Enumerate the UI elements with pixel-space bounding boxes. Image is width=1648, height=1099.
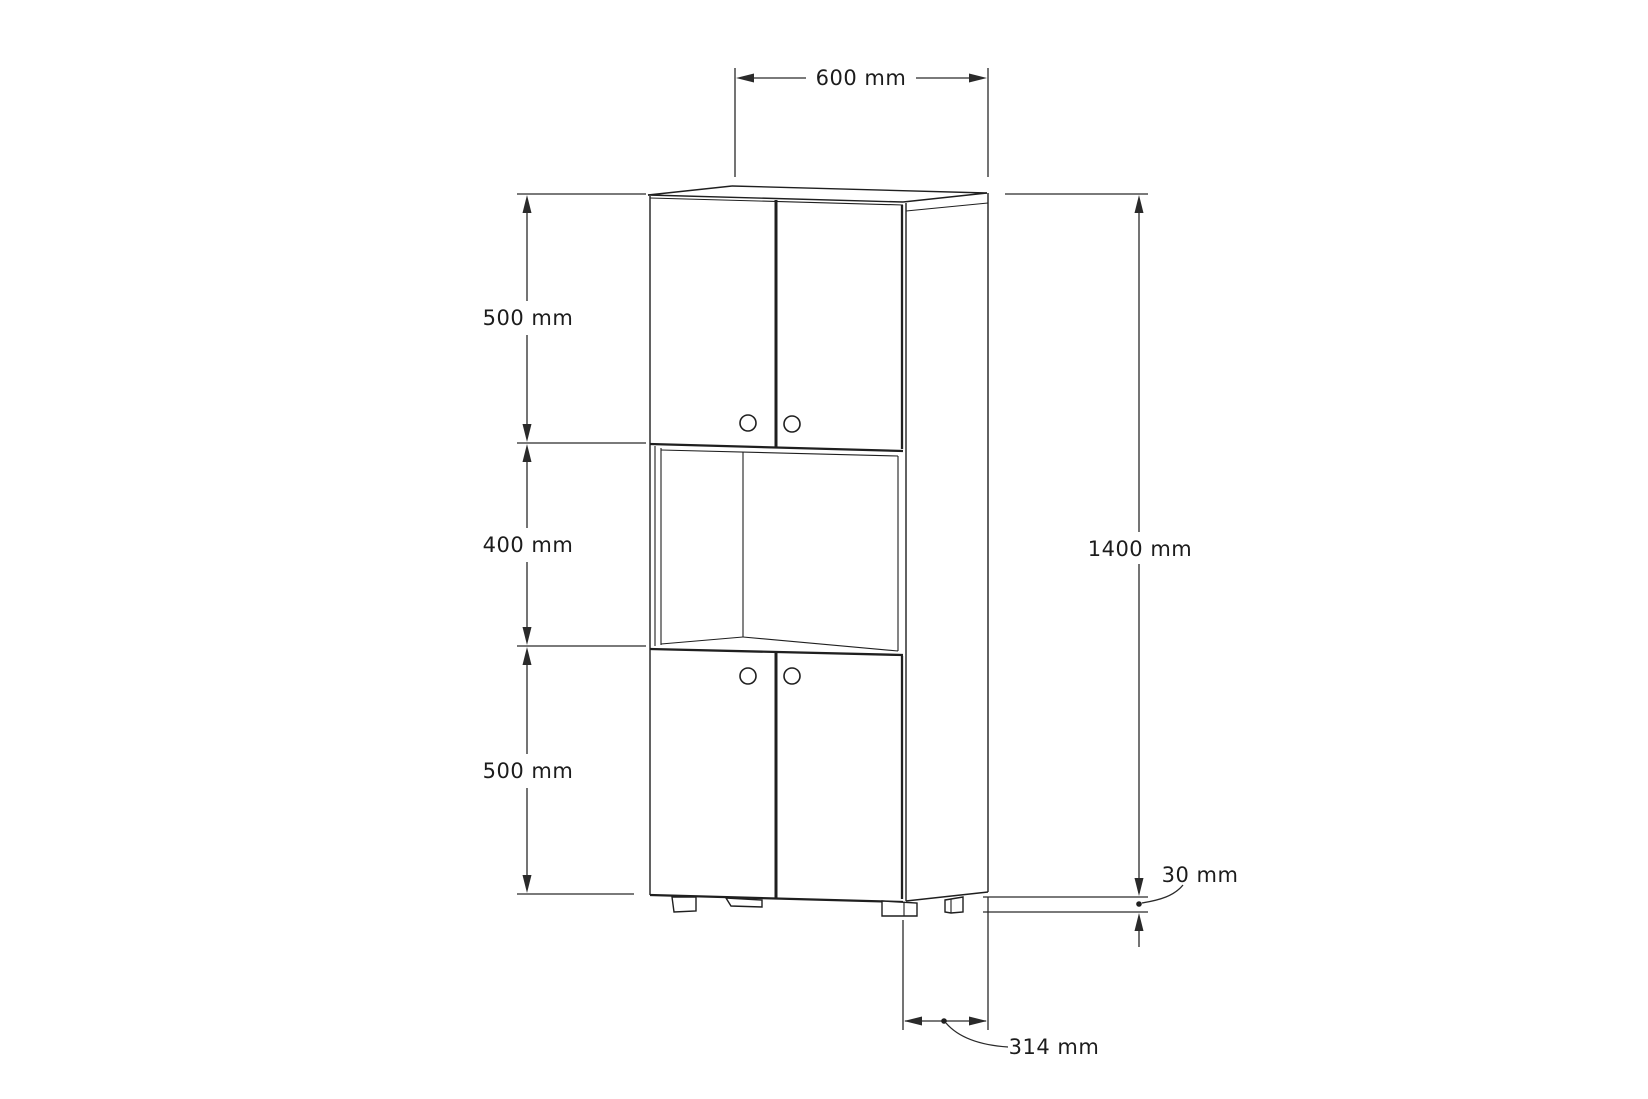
dim-total-height-1400: 1400 mm [1005,194,1192,896]
cabinet-side-panel [906,193,988,901]
cabinet-top-panel [648,186,987,205]
arrowhead-down-icon [523,875,532,893]
arrowhead-right-icon [969,74,987,83]
compartment-shelf-back-left [661,637,743,644]
lower-left-door-knob [740,668,756,684]
foot-front-left [672,897,696,912]
arrowhead-down-icon [523,424,532,442]
dim-depth-label: 314 mm [1009,1035,1100,1059]
top-panel-left-edge [648,186,732,195]
foot-front-right [882,901,917,916]
dim-width-label: 600 mm [816,66,907,90]
dim-depth-leader-line [946,1023,1008,1047]
arrowhead-left-icon [904,1017,922,1026]
arrowhead-right-icon [969,1017,987,1026]
arrowhead-left-icon [736,74,754,83]
foot-back-left [726,898,762,907]
upper-right-door-knob [784,416,800,432]
lower-right-door-knob [784,668,800,684]
open-compartment [650,446,903,655]
dim-upper-500: 500 mm [483,195,574,442]
foot-back-right [945,897,963,913]
dim-leg-leader-line [1142,885,1183,903]
dim-leg-height-label: 30 mm [1162,863,1239,887]
dim-upper-height-label: 500 mm [483,306,574,330]
arrowhead-up-icon [523,444,532,462]
arrowhead-down-icon [523,627,532,645]
dim-width-600: 600 mm [735,66,988,177]
arrowhead-up-icon [523,195,532,213]
lower-doors [650,653,903,902]
dimension-drawing-page: 600 mm 500 mm 400 mm 500 [0,0,1648,1099]
dim-depth-reference-dot [941,1018,947,1024]
top-panel-back-edge [732,186,987,193]
dim-leg-reference-dot [1136,901,1142,907]
top-panel-right-edge [903,193,987,202]
arrowhead-up-icon [1135,195,1144,213]
compartment-shelf-back-right [743,637,898,651]
arrowhead-down-icon [1135,878,1144,896]
upper-doors [650,200,903,451]
dim-depth-314: 314 mm [903,897,1099,1059]
dim-lower-height-label: 500 mm [483,759,574,783]
cabinet-outline [648,186,988,916]
side-panel-top-edge [906,203,988,211]
dim-total-height-label: 1400 mm [1088,537,1193,561]
dim-left-heights: 500 mm 400 mm 500 mm [483,194,646,894]
dim-leg-30: 30 mm [983,863,1238,947]
upper-left-door-knob [740,415,756,431]
cabinet-dimension-diagram: 600 mm 500 mm 400 mm 500 [0,0,1648,1099]
arrowhead-up-icon [523,647,532,665]
dim-middle-height-label: 400 mm [483,533,574,557]
dim-middle-400: 400 mm [483,444,574,645]
arrowhead-up-icon [1135,913,1144,931]
dim-lower-500: 500 mm [483,647,574,893]
